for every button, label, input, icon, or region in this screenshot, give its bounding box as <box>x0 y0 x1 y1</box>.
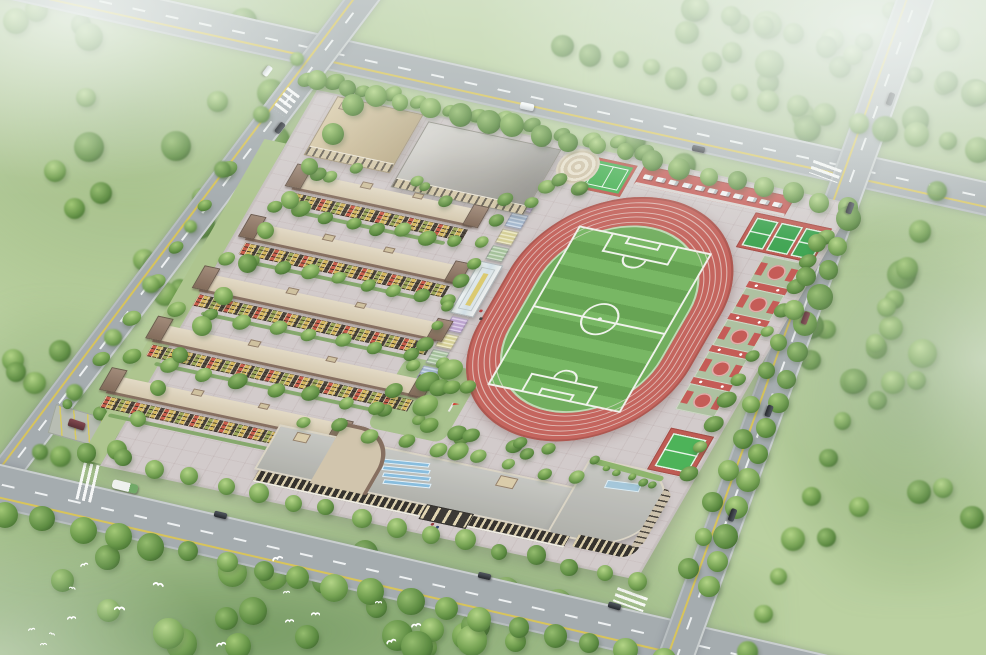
bird <box>285 618 295 624</box>
mist-overlay <box>0 0 986 655</box>
bird <box>153 580 165 588</box>
bird <box>68 585 75 590</box>
bird <box>114 605 125 612</box>
bird <box>311 611 320 617</box>
aerial-school-campus-rendering <box>0 0 986 655</box>
bird <box>410 621 421 629</box>
bird <box>40 642 47 646</box>
bird <box>375 600 383 605</box>
bird <box>282 589 289 594</box>
